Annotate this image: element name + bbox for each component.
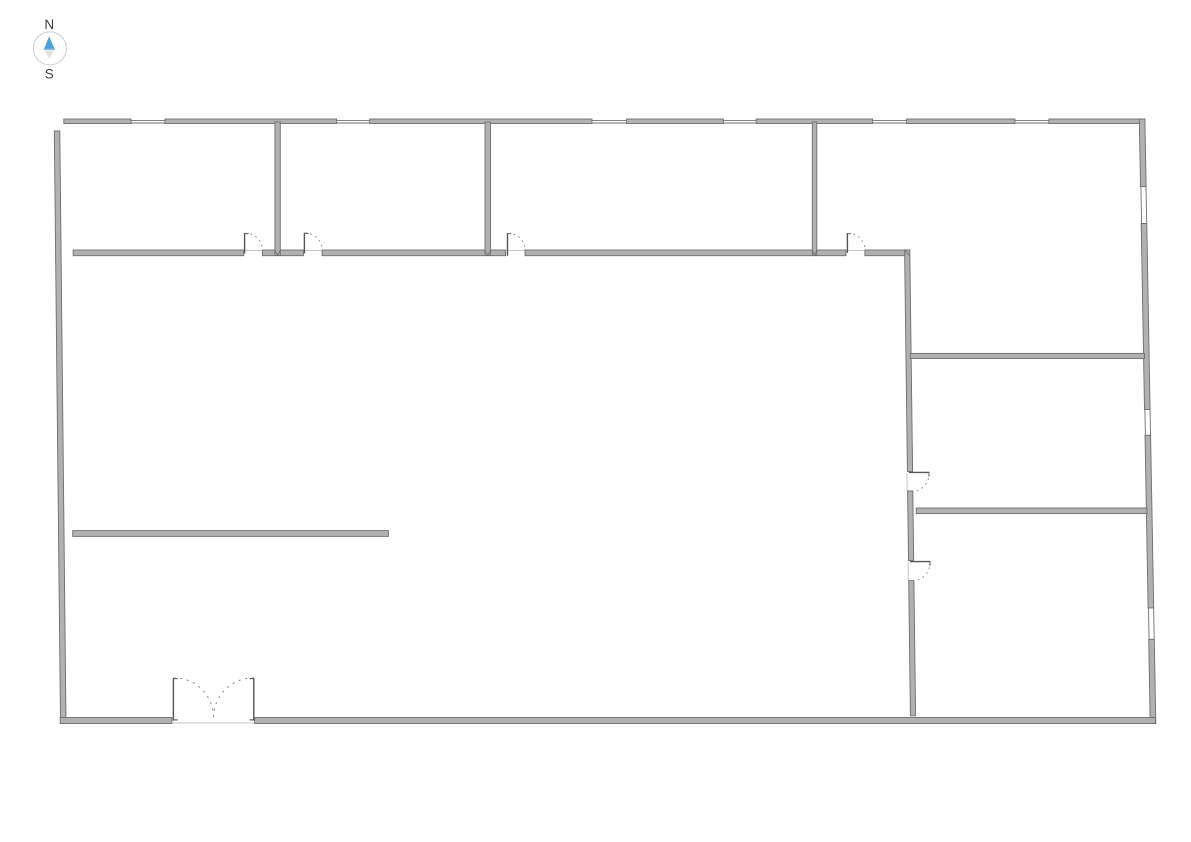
svg-text:S: S (45, 67, 54, 82)
svg-text:N: N (44, 17, 54, 32)
